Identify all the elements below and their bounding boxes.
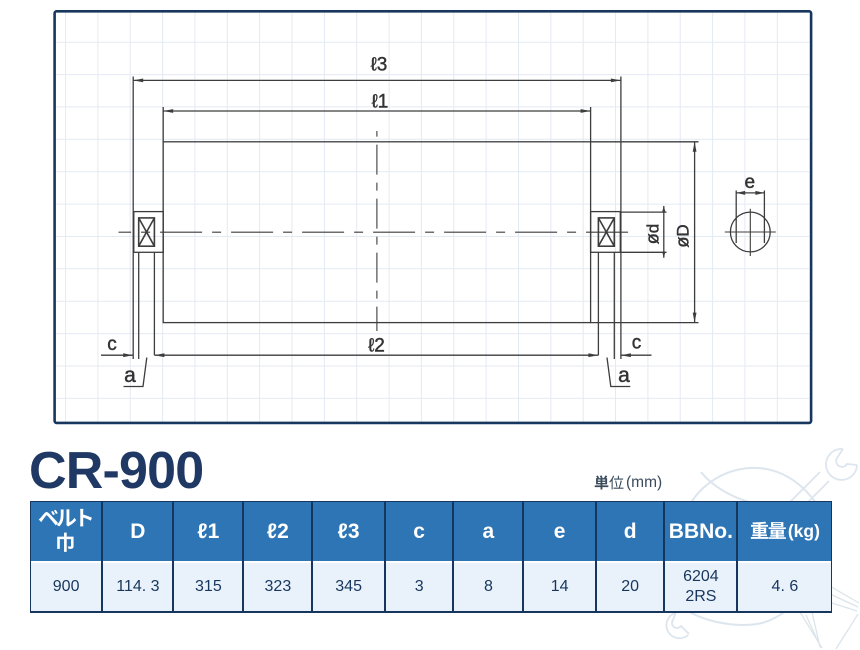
svg-text:c: c [632,333,642,354]
svg-text:c: c [107,334,117,355]
svg-text:ℓ2: ℓ2 [368,336,385,357]
svg-text:ℓ1: ℓ1 [372,92,389,113]
svg-text:a: a [618,364,630,387]
svg-text:e: e [745,172,756,193]
svg-text:øD: øD [673,224,693,247]
svg-text:ød: ød [643,224,663,244]
svg-text:ℓ3: ℓ3 [371,55,388,76]
svg-text:a: a [124,364,136,387]
